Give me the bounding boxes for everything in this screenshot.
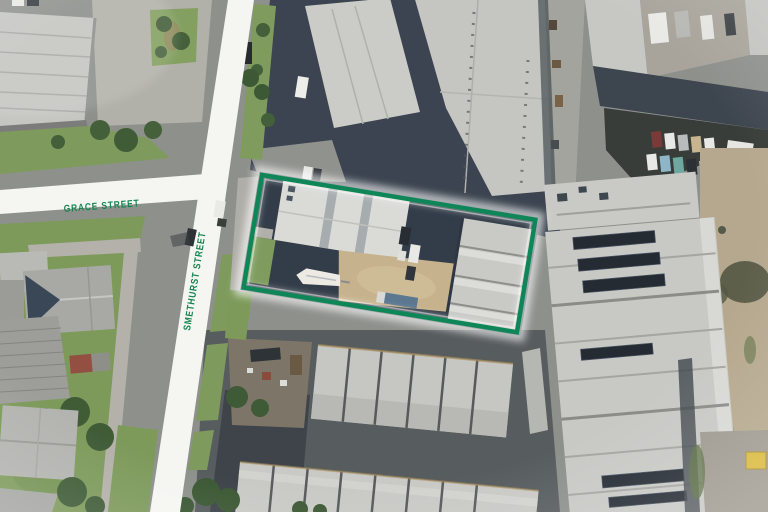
aerial-map-screenshot: GRACE STREET SMETHURST STREET	[0, 0, 768, 512]
aerial-photo: GRACE STREET SMETHURST STREET	[0, 0, 768, 512]
